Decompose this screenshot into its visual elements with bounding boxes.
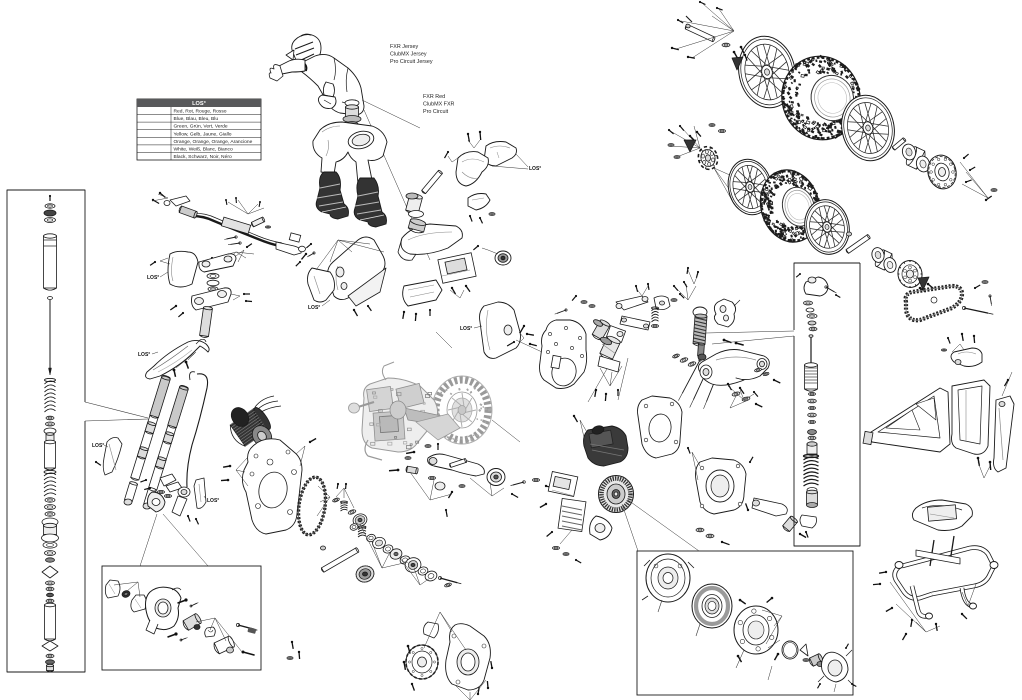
- svg-text:Black, Schwarz, Noir, Néro: Black, Schwarz, Noir, Néro: [174, 154, 232, 160]
- svg-text:LOS°: LOS°: [138, 352, 150, 358]
- svg-text:Yellow, Gelb, Jaune, Giallo: Yellow, Gelb, Jaune, Giallo: [174, 131, 232, 137]
- svg-text:White, Weiß, Blanc, Bianco: White, Weiß, Blanc, Bianco: [174, 146, 233, 152]
- svg-text:Blue, Blau, Bleu, Blu: Blue, Blau, Bleu, Blu: [174, 116, 219, 122]
- svg-text:Red, Rot, Rouge, Rosso: Red, Rot, Rouge, Rosso: [174, 109, 227, 115]
- svg-text:LOS°: LOS°: [529, 166, 541, 172]
- svg-text:LOS°: LOS°: [192, 101, 206, 107]
- svg-text:LOS°: LOS°: [147, 275, 159, 281]
- svg-text:LOS°: LOS°: [308, 305, 320, 311]
- svg-text:LOS°: LOS°: [460, 326, 472, 332]
- svg-text:LOS°: LOS°: [207, 498, 219, 504]
- svg-text:Green, Grün, Vert, Verde: Green, Grün, Vert, Verde: [174, 124, 228, 130]
- svg-text:LOS°: LOS°: [92, 443, 104, 449]
- svg-text:Orange, Orange, Orange, Aranci: Orange, Orange, Orange, Arancione: [174, 139, 253, 145]
